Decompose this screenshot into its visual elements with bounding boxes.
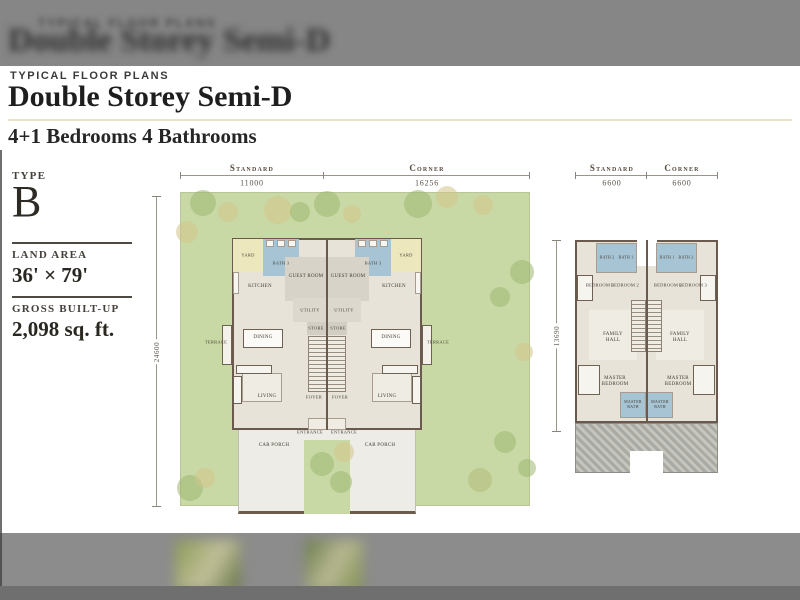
room-label: BEDROOM 2	[611, 282, 639, 287]
dimension-tick	[152, 196, 161, 197]
wc-fixture	[266, 240, 274, 247]
dimension-tick	[180, 172, 181, 179]
room-label: YARD	[241, 252, 254, 257]
sofa-right	[382, 365, 418, 374]
tree-icon	[290, 202, 310, 222]
blurred-title-text: Double Storey Semi-D	[8, 22, 330, 60]
room-label: DINING	[253, 335, 272, 341]
room-label: BEDROOM 2	[654, 282, 682, 287]
tree-icon	[330, 471, 352, 493]
tree-icon	[218, 202, 238, 222]
wc-fixture	[369, 240, 377, 247]
room-label: FOYER	[306, 394, 322, 399]
room-label: BATH 1	[619, 256, 634, 261]
wc-fixture	[358, 240, 366, 247]
blurred-top-strip: TYPICAL FLOOR PLANS Double Storey Semi-D	[0, 0, 800, 66]
room-label: BEDROOM 3	[586, 282, 614, 287]
room-label: UTILITY	[334, 307, 354, 312]
room-label: MASTER BEDROOM	[659, 376, 697, 388]
terrace-right	[422, 325, 432, 365]
page-title: Double Storey Semi-D	[8, 80, 292, 114]
room-label: ENTRANCE	[297, 429, 323, 434]
room-label: BATH 3	[365, 260, 382, 265]
tree-icon	[190, 190, 216, 216]
depth-dimension-first: 13690	[551, 240, 563, 432]
room-label: KITCHEN	[248, 284, 272, 290]
bottom-bar	[0, 586, 800, 600]
dimension-tick	[323, 172, 324, 179]
dimension-tick	[552, 431, 561, 432]
room-label: BATH 1	[660, 256, 675, 261]
tree-icon	[490, 287, 510, 307]
sofa-side-left	[233, 376, 242, 404]
room-label: LIVING	[258, 394, 277, 400]
dim-depth-value: 13690	[553, 324, 561, 349]
room-label: GUEST ROOM	[331, 274, 366, 280]
wc-fixture	[277, 240, 285, 247]
dim-standard-value: 11000	[240, 179, 264, 188]
land-area-value: 36' × 79'	[12, 263, 88, 288]
tree-icon	[494, 431, 516, 453]
kitchen-counter	[415, 272, 421, 294]
dimension-line	[180, 175, 530, 176]
room-label: UTILITY	[300, 307, 320, 312]
brochure-page-viewer: TYPICAL FLOOR PLANS Double Storey Semi-D…	[0, 0, 800, 600]
room-label: MASTER BATH	[648, 400, 672, 410]
stairs-left	[631, 300, 646, 352]
panel-divider	[12, 296, 132, 298]
dimension-tick	[152, 506, 161, 507]
page-edge-line	[0, 150, 2, 586]
dim-depth-value: 24600	[153, 339, 161, 364]
page-subtitle: 4+1 Bedrooms 4 Bathrooms	[8, 124, 257, 149]
room-label: FAMILY HALL	[598, 332, 628, 344]
room-label: GUEST ROOM	[289, 274, 324, 280]
stairs-left	[308, 336, 327, 392]
room-label: FOYER	[332, 394, 348, 399]
blurred-thumbnail	[175, 540, 241, 590]
room-label: BATH 2	[600, 256, 615, 261]
dimension-tick	[646, 172, 647, 179]
room-label: YARD	[399, 252, 412, 257]
dim-corner-value: 6600	[672, 179, 691, 188]
built-up-label: GROSS BUILT-UP	[12, 303, 119, 315]
tree-icon	[334, 442, 354, 462]
tree-icon	[343, 205, 361, 223]
room-label: STORE	[308, 325, 323, 330]
bed-single-left	[577, 275, 593, 301]
dim-standard-label: Standard	[230, 163, 274, 173]
depth-dimension-ground: 24600	[151, 196, 163, 507]
room-label: BATH 3	[273, 260, 290, 265]
type-value: B	[12, 180, 41, 224]
tree-icon	[314, 191, 340, 217]
wc-fixture	[380, 240, 388, 247]
dimension-tick	[717, 172, 718, 179]
land-area-label: LAND AREA	[12, 249, 87, 261]
tree-icon	[510, 260, 534, 284]
room-label: STORE	[330, 325, 345, 330]
room-label: TERRACE	[205, 339, 227, 344]
stairs-right	[647, 300, 662, 352]
room-label: LIVING	[378, 394, 397, 400]
sofa-left	[236, 365, 272, 374]
tree-icon	[473, 195, 493, 215]
room-label: DINING	[381, 335, 400, 341]
dim-corner-label: Corner	[409, 163, 444, 173]
room-label: KITCHEN	[382, 284, 406, 290]
ground-floor-plan: Standard Corner 11000 16256 YARDYARDBATH…	[180, 160, 530, 518]
dimension-tick	[575, 172, 576, 179]
stairs-right	[327, 336, 346, 392]
dimension-tick	[529, 172, 530, 179]
tree-icon	[176, 221, 198, 243]
party-wall	[326, 238, 328, 430]
room-label: CAR PORCH	[259, 443, 289, 449]
room-label: MASTER BATH	[621, 400, 645, 410]
room-label: ENTRANCE	[331, 429, 357, 434]
tree-icon	[436, 186, 458, 208]
title-divider	[8, 119, 792, 121]
room-label: CAR PORCH	[365, 443, 395, 449]
dim-standard-value: 6600	[602, 179, 621, 188]
party-wall	[646, 240, 648, 423]
room-label: BEDROOM 3	[679, 282, 707, 287]
tree-icon	[404, 190, 432, 218]
room-label: BATH 2	[679, 256, 694, 261]
built-up-value: 2,098 sq. ft.	[12, 317, 114, 342]
tree-icon	[195, 468, 215, 488]
terrace-left	[222, 325, 232, 365]
dim-corner-value: 16256	[415, 179, 439, 188]
room-label: FAMILY HALL	[665, 332, 695, 344]
kitchen-counter	[233, 272, 239, 294]
roof-notch	[630, 451, 663, 473]
room-label: TERRACE	[427, 339, 449, 344]
dim-corner-label: Corner	[664, 163, 699, 173]
tree-icon	[310, 452, 334, 476]
dim-standard-label: Standard	[590, 163, 634, 173]
tree-icon	[264, 196, 292, 224]
panel-divider	[12, 242, 132, 244]
tree-icon	[515, 343, 533, 361]
blurred-thumbnail	[305, 540, 363, 590]
wc-fixture	[288, 240, 296, 247]
tree-icon	[518, 459, 536, 477]
room-label: MASTER BEDROOM	[596, 376, 634, 388]
tree-icon	[468, 468, 492, 492]
sofa-side-right	[412, 376, 421, 404]
dimension-tick	[552, 240, 561, 241]
first-floor-plan: Standard Corner 6600 6600 BATH 2BATH 1BA…	[575, 160, 720, 475]
bed-single-right	[700, 275, 716, 301]
